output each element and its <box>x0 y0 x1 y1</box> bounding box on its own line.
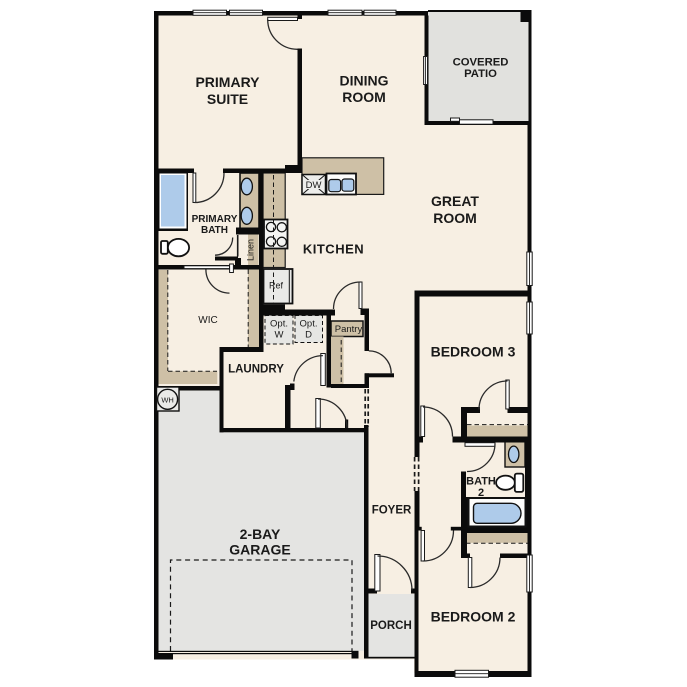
svg-text:DINING: DINING <box>340 73 389 89</box>
svg-text:W: W <box>275 330 284 341</box>
svg-text:Opt.: Opt. <box>300 319 318 330</box>
svg-text:Opt.: Opt. <box>270 319 288 330</box>
svg-text:Pantry: Pantry <box>335 324 363 335</box>
svg-text:BATH: BATH <box>201 225 228 236</box>
svg-text:BEDROOM 3: BEDROOM 3 <box>431 344 516 360</box>
svg-text:PRIMARY: PRIMARY <box>195 74 260 90</box>
svg-text:WIC: WIC <box>198 315 217 326</box>
svg-text:BATH: BATH <box>466 476 496 488</box>
svg-text:2-BAY: 2-BAY <box>240 526 281 542</box>
svg-text:PATIO: PATIO <box>464 68 497 80</box>
svg-text:ROOM: ROOM <box>433 210 477 226</box>
svg-text:KITCHEN: KITCHEN <box>303 242 364 257</box>
svg-text:FOYER: FOYER <box>372 505 412 517</box>
svg-text:Linen: Linen <box>246 239 256 261</box>
svg-text:2: 2 <box>478 487 484 499</box>
svg-text:LAUNDRY: LAUNDRY <box>228 364 284 376</box>
svg-text:WH: WH <box>161 395 174 404</box>
svg-text:GARAGE: GARAGE <box>229 542 290 558</box>
svg-text:GREAT: GREAT <box>431 193 479 209</box>
svg-text:D: D <box>305 330 312 341</box>
svg-text:SUITE: SUITE <box>207 91 248 107</box>
svg-text:PRIMARY: PRIMARY <box>192 214 238 225</box>
svg-text:BEDROOM 2: BEDROOM 2 <box>431 609 516 625</box>
svg-text:Ref: Ref <box>269 281 284 291</box>
svg-text:COVERED: COVERED <box>453 57 509 69</box>
svg-text:PORCH: PORCH <box>370 620 412 632</box>
svg-text:DW: DW <box>306 180 322 191</box>
svg-text:ROOM: ROOM <box>342 89 386 105</box>
